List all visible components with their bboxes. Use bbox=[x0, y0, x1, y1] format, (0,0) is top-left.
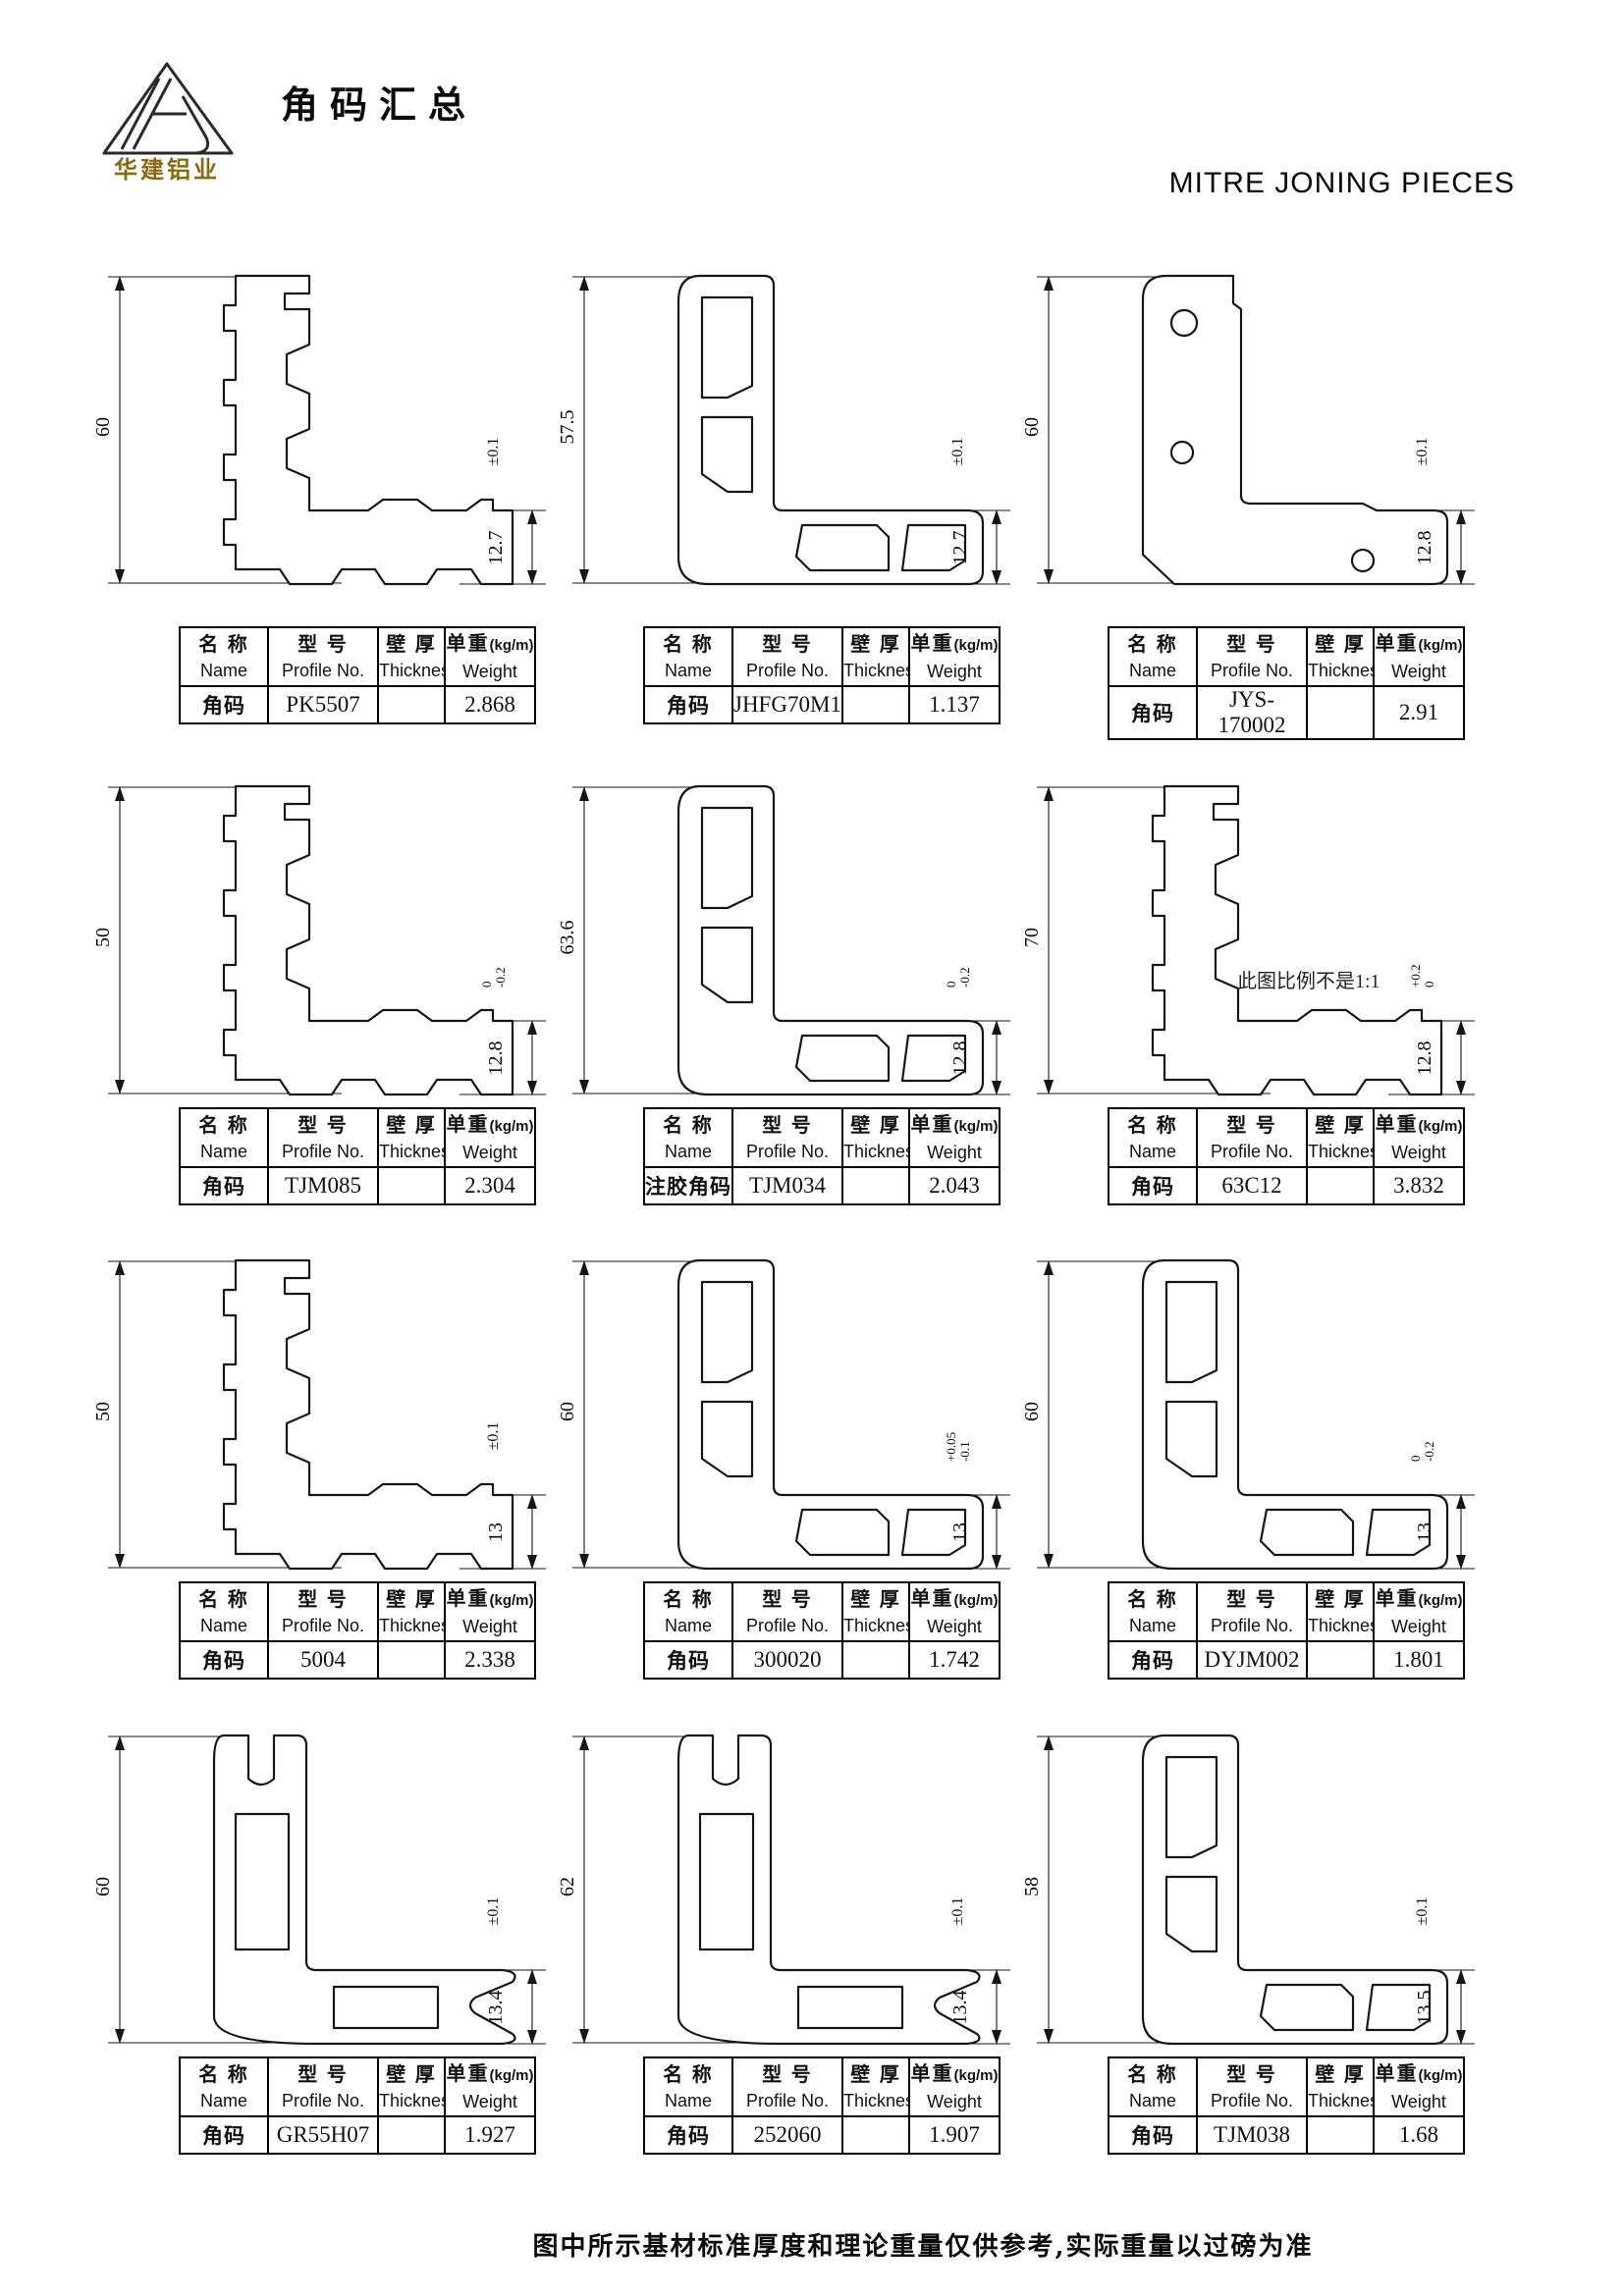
profile-cell-tjm034: 63.6 0-0.2 12.8 名 称Name 型 号Profile No. 壁… bbox=[553, 771, 1014, 1234]
spec-table: 名 称Name 型 号Profile No. 壁 厚Thickness 单重(k… bbox=[1108, 1107, 1465, 1205]
value-thickness bbox=[1307, 1641, 1374, 1679]
value-name: 角码 bbox=[1109, 1641, 1197, 1679]
height-dimension: 50 bbox=[92, 1377, 112, 1446]
value-profile-no: JHFG70M19 bbox=[732, 686, 842, 723]
value-weight: 1.68 bbox=[1374, 2116, 1464, 2154]
foot-tolerance: ±0.1 bbox=[485, 417, 505, 486]
company-logo: 华建铝业 bbox=[96, 59, 239, 182]
spec-header-row: 名 称Name 型 号Profile No. 壁 厚Thickness 单重(k… bbox=[644, 1108, 1000, 1167]
col-header-weight: 单重(kg/m)Weight bbox=[445, 627, 535, 686]
col-header-weight: 单重(kg/m)Weight bbox=[1374, 1582, 1464, 1641]
value-profile-no: 5004 bbox=[268, 1641, 378, 1679]
value-profile-no: TJM038 bbox=[1197, 2116, 1307, 2154]
col-header-profile: 型 号Profile No. bbox=[732, 1108, 842, 1167]
profile-cell-dyjm002: 60 0-0.2 13 名 称Name 型 号Profile No. 壁 厚Th… bbox=[1017, 1245, 1479, 1708]
page-subtitle-en: MITRE JONING PIECES bbox=[1024, 167, 1515, 200]
profile-cell-pk5507: 60 ±0.1 12.7 名 称Name 型 号Profile No. 壁 厚T… bbox=[88, 260, 550, 723]
value-profile-no: JYS-170002 bbox=[1197, 686, 1307, 739]
spec-value-row: 角码 5004 2.338 bbox=[180, 1641, 535, 1679]
value-profile-no: TJM085 bbox=[268, 1167, 378, 1204]
spec-table: 名 称Name 型 号Profile No. 壁 厚Thickness 单重(k… bbox=[643, 2056, 1001, 2155]
height-dimension: 58 bbox=[1021, 1852, 1041, 1921]
spec-value-row: 角码 JHFG70M19 1.137 bbox=[644, 686, 1000, 723]
value-profile-no: 300020 bbox=[732, 1641, 842, 1679]
foot-dimension: 12.8 bbox=[949, 1024, 969, 1093]
col-header-weight: 单重(kg/m)Weight bbox=[909, 1582, 1000, 1641]
col-header-thickness: 壁 厚Thickness bbox=[378, 2057, 445, 2116]
spec-header-row: 名 称Name 型 号Profile No. 壁 厚Thickness 单重(k… bbox=[1109, 1582, 1464, 1641]
spec-value-row: 注胶角码 TJM034 2.043 bbox=[644, 1167, 1000, 1204]
foot-tolerance: ±0.1 bbox=[1414, 417, 1434, 486]
profile-cell-300020: 60 +0.05-0.1 13 名 称Name 型 号Profile No. 壁… bbox=[553, 1245, 1014, 1708]
col-header-weight: 单重(kg/m)Weight bbox=[445, 2057, 535, 2116]
col-header-name: 名 称Name bbox=[180, 627, 268, 686]
col-header-thickness: 壁 厚Thickness bbox=[1307, 2057, 1374, 2116]
foot-dimension: 12.7 bbox=[949, 513, 969, 582]
value-name: 角码 bbox=[644, 2116, 732, 2154]
col-header-thickness: 壁 厚Thickness bbox=[842, 2057, 909, 2116]
spec-value-row: 角码 DYJM002 1.801 bbox=[1109, 1641, 1464, 1679]
col-header-profile: 型 号Profile No. bbox=[268, 2057, 378, 2116]
value-weight: 2.304 bbox=[445, 1167, 535, 1204]
value-weight: 2.338 bbox=[445, 1641, 535, 1679]
profile-drawing bbox=[553, 260, 1014, 594]
spec-value-row: 角码 252060 1.907 bbox=[644, 2116, 1000, 2154]
spec-table: 名 称Name 型 号Profile No. 壁 厚Thickness 单重(k… bbox=[179, 1107, 536, 1205]
col-header-name: 名 称Name bbox=[644, 627, 732, 686]
height-dimension: 60 bbox=[92, 393, 112, 461]
height-dimension: 70 bbox=[1021, 903, 1041, 972]
value-weight: 1.137 bbox=[909, 686, 1000, 723]
foot-dimension: 13.5 bbox=[1414, 1973, 1434, 2042]
foot-tolerance: ±0.1 bbox=[485, 1877, 505, 1946]
col-header-weight: 单重(kg/m)Weight bbox=[445, 1108, 535, 1167]
col-header-name: 名 称Name bbox=[644, 1582, 732, 1641]
col-header-name: 名 称Name bbox=[644, 1108, 732, 1167]
col-header-name: 名 称Name bbox=[1109, 1582, 1197, 1641]
col-header-weight: 单重(kg/m)Weight bbox=[909, 627, 1000, 686]
value-weight: 1.801 bbox=[1374, 1641, 1464, 1679]
profile-cell-jys170002: 60 ±0.1 12.8 名 称Name 型 号Profile No. 壁 厚T… bbox=[1017, 260, 1479, 723]
height-dimension: 60 bbox=[1021, 393, 1041, 461]
col-header-profile: 型 号Profile No. bbox=[1197, 1582, 1307, 1641]
col-header-thickness: 壁 厚Thickness bbox=[1307, 1108, 1374, 1167]
profile-cell-tjm085: 50 0-0.2 12.8 名 称Name 型 号Profile No. 壁 厚… bbox=[88, 771, 550, 1234]
profile-cell-tjm038: 58 ±0.1 13.5 名 称Name 型 号Profile No. 壁 厚T… bbox=[1017, 1720, 1479, 2183]
value-weight: 2.868 bbox=[445, 686, 535, 723]
col-header-weight: 单重(kg/m)Weight bbox=[1374, 2057, 1464, 2116]
spec-table: 名 称Name 型 号Profile No. 壁 厚Thickness 单重(k… bbox=[179, 626, 536, 724]
value-profile-no: 63C12 bbox=[1197, 1167, 1307, 1204]
spec-header-row: 名 称Name 型 号Profile No. 壁 厚Thickness 单重(k… bbox=[180, 2057, 535, 2116]
height-dimension: 60 bbox=[557, 1377, 576, 1446]
col-header-weight: 单重(kg/m)Weight bbox=[445, 1582, 535, 1641]
col-header-name: 名 称Name bbox=[180, 1582, 268, 1641]
height-dimension: 60 bbox=[92, 1852, 112, 1921]
value-thickness bbox=[1307, 1167, 1374, 1204]
foot-tolerance-stacked: 0-0.2 bbox=[480, 934, 510, 988]
foot-dimension: 12.7 bbox=[485, 513, 505, 582]
spec-table: 名 称Name 型 号Profile No. 壁 厚Thickness 单重(k… bbox=[1108, 626, 1465, 740]
spec-table: 名 称Name 型 号Profile No. 壁 厚Thickness 单重(k… bbox=[1108, 2056, 1465, 2155]
profile-cell-252060: 62 ±0.1 13.4 名 称Name 型 号Profile No. 壁 厚T… bbox=[553, 1720, 1014, 2183]
spec-table: 名 称Name 型 号Profile No. 壁 厚Thickness 单重(k… bbox=[643, 1107, 1001, 1205]
spec-header-row: 名 称Name 型 号Profile No. 壁 厚Thickness 单重(k… bbox=[1109, 627, 1464, 686]
col-header-profile: 型 号Profile No. bbox=[732, 2057, 842, 2116]
col-header-profile: 型 号Profile No. bbox=[268, 1108, 378, 1167]
foot-tolerance: ±0.1 bbox=[949, 1877, 969, 1946]
foot-tolerance-stacked: 0-0.2 bbox=[1409, 1409, 1438, 1462]
profile-drawing bbox=[88, 1245, 550, 1578]
value-weight: 1.907 bbox=[909, 2116, 1000, 2154]
scale-note: 此图比例不是1:1 bbox=[1237, 965, 1424, 993]
value-thickness bbox=[378, 1641, 445, 1679]
foot-dimension: 13 bbox=[485, 1498, 505, 1567]
value-thickness bbox=[842, 1167, 909, 1204]
profile-drawing bbox=[1017, 1720, 1479, 2054]
spec-header-row: 名 称Name 型 号Profile No. 壁 厚Thickness 单重(k… bbox=[180, 1108, 535, 1167]
value-name: 角码 bbox=[180, 2116, 268, 2154]
value-name: 角码 bbox=[1109, 2116, 1197, 2154]
value-thickness bbox=[1307, 2116, 1374, 2154]
col-header-weight: 单重(kg/m)Weight bbox=[1374, 627, 1464, 686]
col-header-name: 名 称Name bbox=[1109, 2057, 1197, 2116]
profile-drawing bbox=[88, 1720, 550, 2054]
value-weight: 1.742 bbox=[909, 1641, 1000, 1679]
value-name: 角码 bbox=[644, 686, 732, 723]
foot-dimension: 13 bbox=[1414, 1498, 1434, 1567]
col-header-name: 名 称Name bbox=[180, 1108, 268, 1167]
value-thickness bbox=[842, 1641, 909, 1679]
value-profile-no: DYJM002 bbox=[1197, 1641, 1307, 1679]
spec-header-row: 名 称Name 型 号Profile No. 壁 厚Thickness 单重(k… bbox=[644, 2057, 1000, 2116]
col-header-profile: 型 号Profile No. bbox=[732, 627, 842, 686]
foot-dimension: 12.8 bbox=[1414, 1024, 1434, 1093]
value-name: 角码 bbox=[644, 1641, 732, 1679]
spec-header-row: 名 称Name 型 号Profile No. 壁 厚Thickness 单重(k… bbox=[180, 627, 535, 686]
value-profile-no: TJM034 bbox=[732, 1167, 842, 1204]
spec-value-row: 角码 PK5507 2.868 bbox=[180, 686, 535, 723]
profile-cell-gr55h07: 60 ±0.1 13.4 名 称Name 型 号Profile No. 壁 厚T… bbox=[88, 1720, 550, 2183]
col-header-profile: 型 号Profile No. bbox=[268, 627, 378, 686]
value-profile-no: PK5507 bbox=[268, 686, 378, 723]
value-name: 角码 bbox=[180, 686, 268, 723]
value-weight: 1.927 bbox=[445, 2116, 535, 2154]
profile-cell-5004: 50 ±0.1 13 名 称Name 型 号Profile No. 壁 厚Thi… bbox=[88, 1245, 550, 1708]
col-header-profile: 型 号Profile No. bbox=[268, 1582, 378, 1641]
col-header-thickness: 壁 厚Thickness bbox=[1307, 1582, 1374, 1641]
spec-header-row: 名 称Name 型 号Profile No. 壁 厚Thickness 单重(k… bbox=[1109, 1108, 1464, 1167]
col-header-thickness: 壁 厚Thickness bbox=[842, 1582, 909, 1641]
col-header-weight: 单重(kg/m)Weight bbox=[1374, 1108, 1464, 1167]
height-dimension: 57.5 bbox=[557, 393, 576, 461]
value-name: 注胶角码 bbox=[644, 1167, 732, 1204]
col-header-thickness: 壁 厚Thickness bbox=[1307, 627, 1374, 686]
value-thickness bbox=[378, 1167, 445, 1204]
col-header-profile: 型 号Profile No. bbox=[1197, 2057, 1307, 2116]
col-header-thickness: 壁 厚Thickness bbox=[842, 627, 909, 686]
spec-value-row: 角码 TJM085 2.304 bbox=[180, 1167, 535, 1204]
value-thickness bbox=[842, 686, 909, 723]
value-thickness bbox=[1307, 686, 1374, 739]
col-header-name: 名 称Name bbox=[180, 2057, 268, 2116]
value-profile-no: 252060 bbox=[732, 2116, 842, 2154]
value-weight: 3.832 bbox=[1374, 1167, 1464, 1204]
value-weight: 2.91 bbox=[1374, 686, 1464, 739]
logo-text: 华建铝业 bbox=[114, 155, 220, 182]
col-header-profile: 型 号Profile No. bbox=[732, 1582, 842, 1641]
page-title: 角码汇总 bbox=[281, 75, 477, 129]
profile-drawing bbox=[1017, 260, 1479, 594]
spec-value-row: 角码 63C12 3.832 bbox=[1109, 1167, 1464, 1204]
foot-dimension: 13.4 bbox=[949, 1973, 969, 2042]
col-header-weight: 单重(kg/m)Weight bbox=[909, 2057, 1000, 2116]
col-header-profile: 型 号Profile No. bbox=[1197, 1108, 1307, 1167]
profile-cell-63c12: 70 +0.20 12.8 此图比例不是1:1 名 称Name 型 号Profi… bbox=[1017, 771, 1479, 1234]
foot-tolerance-stacked: +0.05-0.1 bbox=[945, 1409, 974, 1462]
foot-tolerance: ±0.1 bbox=[485, 1402, 505, 1470]
footer-disclaimer: 图中所示基材标准厚度和理论重量仅供参考,实际重量以过磅为准 bbox=[236, 2226, 1610, 2263]
col-header-thickness: 壁 厚Thickness bbox=[378, 627, 445, 686]
height-dimension: 63.6 bbox=[557, 903, 576, 972]
spec-table: 名 称Name 型 号Profile No. 壁 厚Thickness 单重(k… bbox=[179, 1581, 536, 1680]
spec-value-row: 角码 GR55H07 1.927 bbox=[180, 2116, 535, 2154]
spec-header-row: 名 称Name 型 号Profile No. 壁 厚Thickness 单重(k… bbox=[1109, 2057, 1464, 2116]
col-header-thickness: 壁 厚Thickness bbox=[842, 1108, 909, 1167]
foot-dimension: 12.8 bbox=[485, 1024, 505, 1093]
spec-table: 名 称Name 型 号Profile No. 壁 厚Thickness 单重(k… bbox=[1108, 1581, 1465, 1680]
spec-value-row: 角码 TJM038 1.68 bbox=[1109, 2116, 1464, 2154]
spec-table: 名 称Name 型 号Profile No. 壁 厚Thickness 单重(k… bbox=[179, 2056, 536, 2155]
col-header-weight: 单重(kg/m)Weight bbox=[909, 1108, 1000, 1167]
height-dimension: 60 bbox=[1021, 1377, 1041, 1446]
spec-header-row: 名 称Name 型 号Profile No. 壁 厚Thickness 单重(k… bbox=[180, 1582, 535, 1641]
value-name: 角码 bbox=[180, 1641, 268, 1679]
col-header-profile: 型 号Profile No. bbox=[1197, 627, 1307, 686]
col-header-name: 名 称Name bbox=[644, 2057, 732, 2116]
spec-value-row: 角码 300020 1.742 bbox=[644, 1641, 1000, 1679]
value-weight: 2.043 bbox=[909, 1167, 1000, 1204]
height-dimension: 62 bbox=[557, 1852, 576, 1921]
value-name: 角码 bbox=[180, 1167, 268, 1204]
spec-table: 名 称Name 型 号Profile No. 壁 厚Thickness 单重(k… bbox=[643, 626, 1001, 724]
profile-drawing bbox=[553, 1720, 1014, 2054]
col-header-name: 名 称Name bbox=[1109, 627, 1197, 686]
foot-dimension: 13.4 bbox=[485, 1973, 505, 2042]
value-thickness bbox=[378, 686, 445, 723]
profile-drawing bbox=[88, 260, 550, 594]
col-header-name: 名 称Name bbox=[1109, 1108, 1197, 1167]
value-thickness bbox=[842, 2116, 909, 2154]
foot-tolerance: ±0.1 bbox=[1414, 1877, 1434, 1946]
col-header-thickness: 壁 厚Thickness bbox=[378, 1582, 445, 1641]
catalog-page: 华建铝业 角码汇总 MITRE JONING PIECES 60 ±0.1 12… bbox=[0, 0, 1623, 2296]
spec-header-row: 名 称Name 型 号Profile No. 壁 厚Thickness 单重(k… bbox=[644, 1582, 1000, 1641]
foot-tolerance-stacked: 0-0.2 bbox=[945, 934, 974, 988]
value-name: 角码 bbox=[1109, 1167, 1197, 1204]
foot-dimension: 13 bbox=[949, 1498, 969, 1567]
profile-cell-jhfg70m19: 57.5 ±0.1 12.7 名 称Name 型 号Profile No. 壁 … bbox=[553, 260, 1014, 723]
value-profile-no: GR55H07 bbox=[268, 2116, 378, 2154]
foot-tolerance: ±0.1 bbox=[949, 417, 969, 486]
spec-value-row: 角码 JYS-170002 2.91 bbox=[1109, 686, 1464, 739]
height-dimension: 50 bbox=[92, 903, 112, 972]
spec-table: 名 称Name 型 号Profile No. 壁 厚Thickness 单重(k… bbox=[643, 1581, 1001, 1680]
value-name: 角码 bbox=[1109, 686, 1197, 739]
spec-header-row: 名 称Name 型 号Profile No. 壁 厚Thickness 单重(k… bbox=[644, 627, 1000, 686]
value-thickness bbox=[378, 2116, 445, 2154]
col-header-thickness: 壁 厚Thickness bbox=[378, 1108, 445, 1167]
foot-dimension: 12.8 bbox=[1414, 513, 1434, 582]
